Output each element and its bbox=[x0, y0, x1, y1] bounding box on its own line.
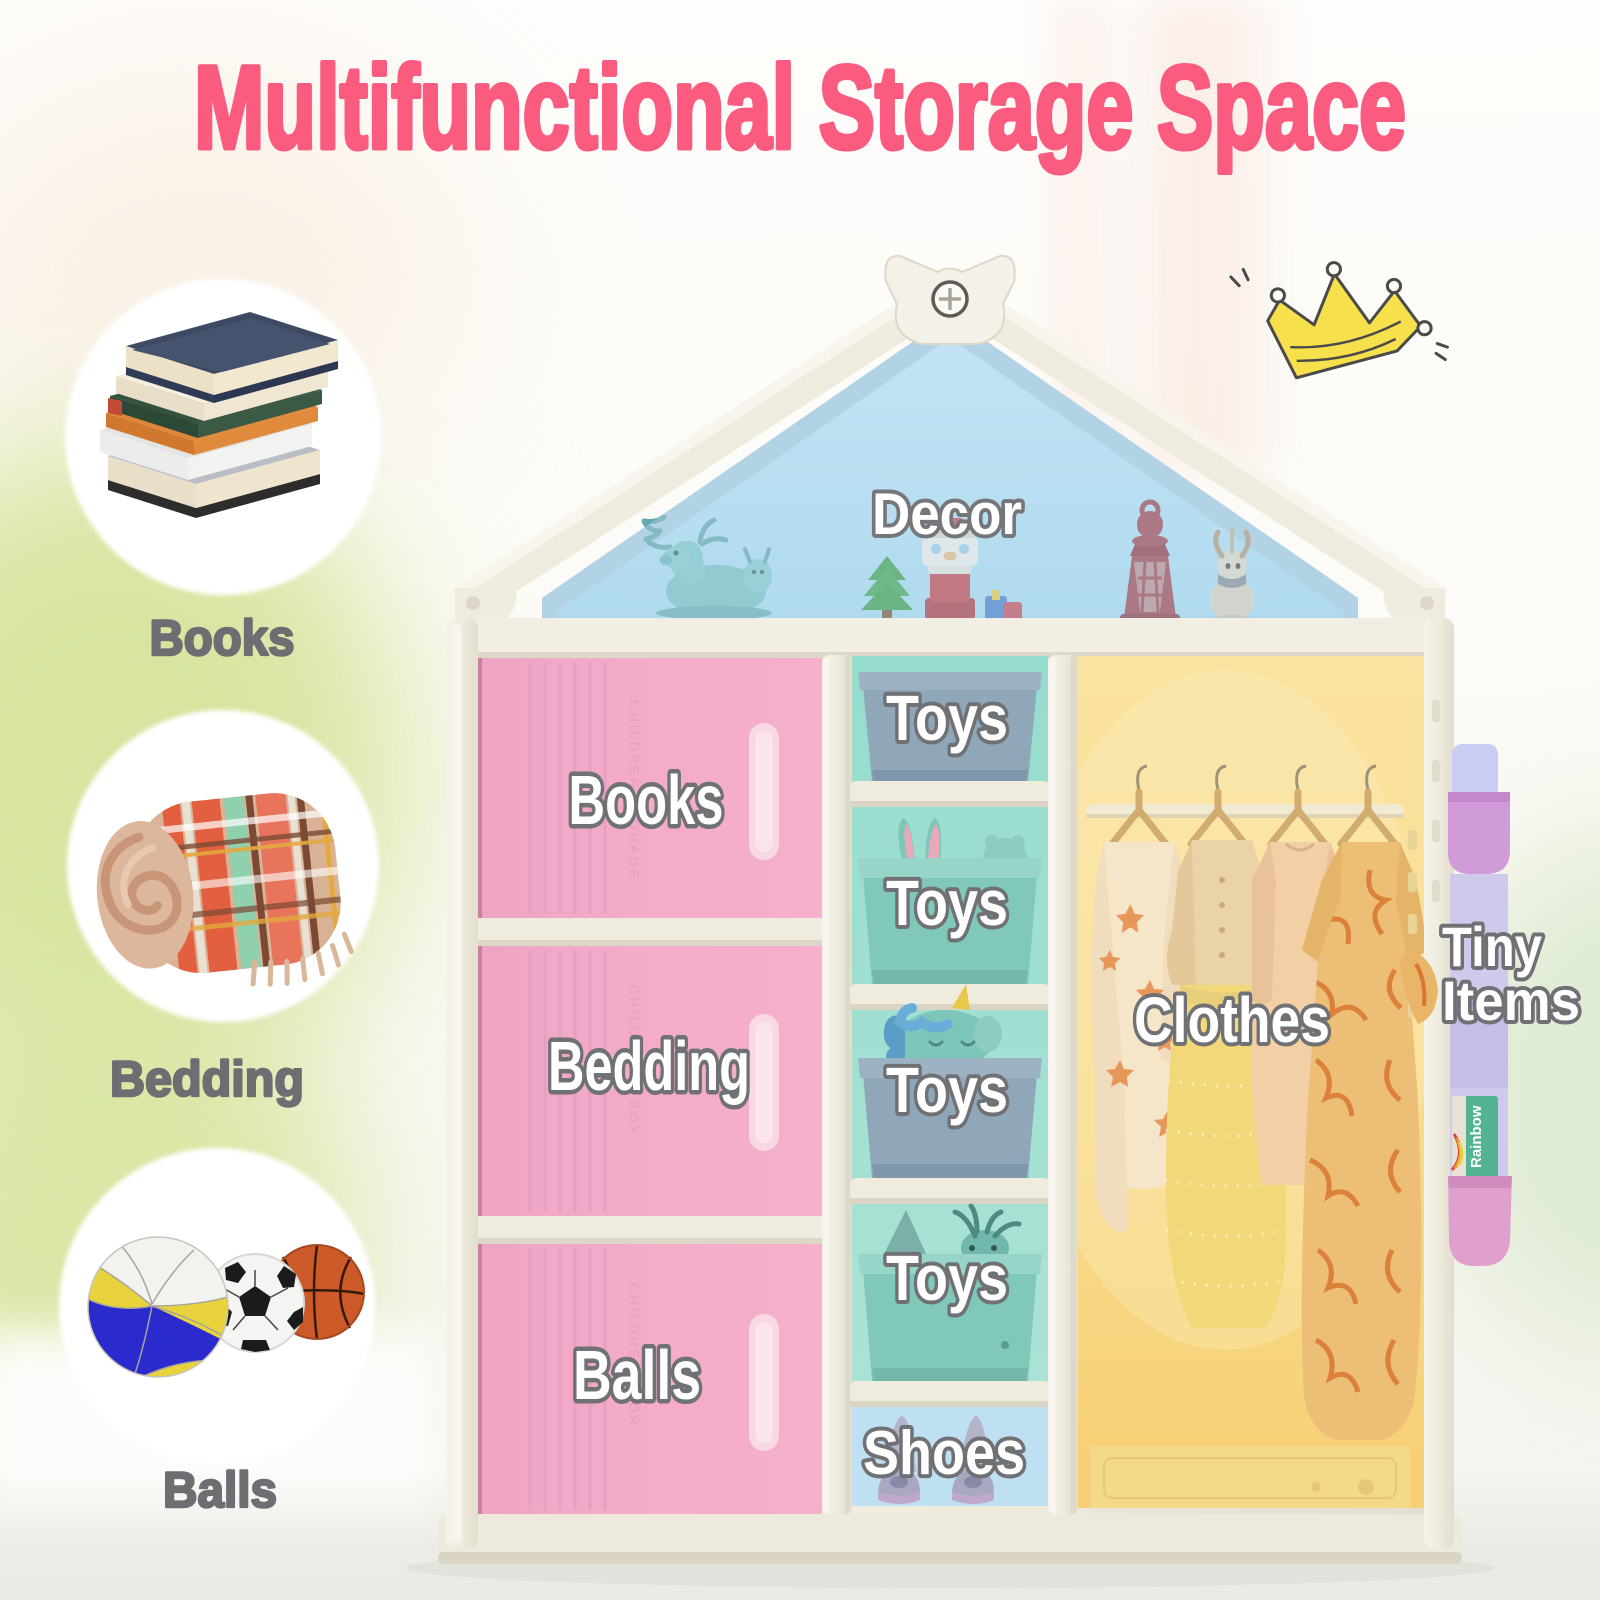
svg-text:Bedding: Bedding bbox=[548, 1027, 750, 1105]
svg-text:Items: Items bbox=[1442, 969, 1580, 1032]
svg-text:Shoes: Shoes bbox=[863, 1419, 1025, 1488]
svg-text:Rainbow: Rainbow bbox=[1468, 1105, 1485, 1168]
svg-text:Balls: Balls bbox=[163, 1462, 277, 1518]
svg-text:Books: Books bbox=[569, 761, 724, 839]
svg-text:Clothes: Clothes bbox=[1134, 984, 1330, 1056]
svg-text:Balls: Balls bbox=[573, 1336, 701, 1414]
svg-text:Toys: Toys bbox=[886, 867, 1008, 939]
svg-text:Toys: Toys bbox=[886, 1242, 1008, 1314]
svg-text:Toys: Toys bbox=[886, 682, 1008, 754]
svg-text:Decor: Decor bbox=[872, 482, 1022, 547]
svg-text:Toys: Toys bbox=[886, 1054, 1008, 1126]
svg-text:Bedding: Bedding bbox=[110, 1051, 304, 1107]
svg-text:Books: Books bbox=[150, 610, 295, 666]
svg-text:Multifunctional Storage Space: Multifunctional Storage Space bbox=[194, 42, 1406, 174]
